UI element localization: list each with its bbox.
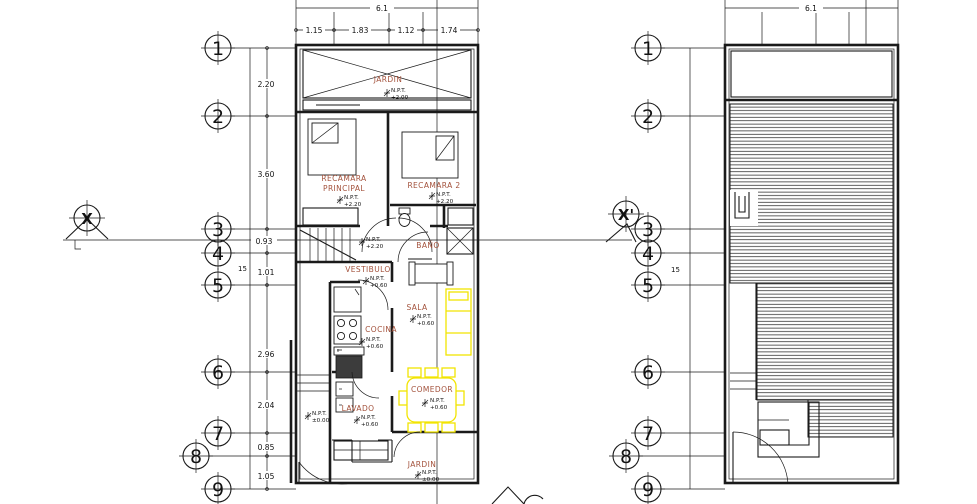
level-marker-icon bbox=[410, 315, 416, 323]
level-marker-icon bbox=[384, 89, 390, 97]
grid-bubble-2: 2 bbox=[201, 99, 296, 133]
door-arc bbox=[394, 432, 420, 457]
dim-seg: 1.83 bbox=[352, 26, 369, 35]
svg-text:±0.00: ±0.00 bbox=[422, 477, 440, 483]
svg-text:+0.60: +0.60 bbox=[430, 405, 448, 411]
dim-side: 1.05 bbox=[258, 472, 275, 481]
level-marker-icon bbox=[429, 192, 435, 200]
garden-hatch bbox=[731, 51, 892, 97]
grid-bubble-3: 3 bbox=[201, 212, 296, 246]
cad-canvas: 6.1 1.15 1.83 1.12 1.74 2.20 3.60 0.93 1… bbox=[0, 0, 977, 504]
svg-text:±0.00: ±0.00 bbox=[312, 418, 330, 424]
grid-bubble-8: 8 bbox=[609, 439, 725, 473]
door-arc bbox=[299, 462, 352, 484]
grid-bubble-2: 2 bbox=[631, 99, 725, 133]
dim-side: 2.04 bbox=[258, 401, 275, 410]
fridge-icon bbox=[334, 287, 361, 312]
svg-text:4: 4 bbox=[212, 243, 224, 265]
svg-text:N.P.T.: N.P.T. bbox=[436, 192, 451, 198]
level-marker-icon bbox=[305, 412, 311, 420]
dim-total-width-left: 6.1 bbox=[376, 4, 388, 13]
roof-hatch bbox=[730, 104, 893, 437]
stove-icon bbox=[334, 316, 361, 344]
grid-bubble-7: 7 bbox=[631, 416, 725, 450]
right-side-passage bbox=[730, 283, 756, 400]
svg-text:N.P.T.: N.P.T. bbox=[361, 415, 376, 421]
left-side-dimensions: 2.20 3.60 0.93 1.01 2.96 2.04 0.85 1.05 … bbox=[238, 47, 279, 491]
svg-text:X: X bbox=[81, 210, 93, 228]
svg-text:N.P.T.: N.P.T. bbox=[366, 337, 381, 343]
svg-text:7: 7 bbox=[642, 423, 654, 445]
svg-text:9: 9 bbox=[642, 479, 654, 501]
dim-seg: 1.12 bbox=[398, 26, 415, 35]
svg-text:+2.20: +2.20 bbox=[436, 199, 454, 205]
side-yard-steps bbox=[296, 375, 330, 391]
svg-text:2: 2 bbox=[642, 106, 654, 128]
svg-text:8: 8 bbox=[620, 446, 632, 468]
grid-bubble-1: 1 bbox=[201, 31, 296, 65]
grid-bubble-4: 4 bbox=[201, 236, 296, 270]
svg-text:2: 2 bbox=[212, 106, 224, 128]
bench-icon bbox=[409, 262, 453, 285]
room-label-cocina: COCINA bbox=[365, 325, 397, 334]
svg-text:+0.60: +0.60 bbox=[361, 422, 379, 428]
shower-icon bbox=[447, 228, 473, 254]
grid-bubble-4: 4 bbox=[631, 236, 725, 270]
room-label-jardin-bottom: JARDIN bbox=[407, 460, 436, 469]
passage-steps bbox=[730, 373, 756, 389]
dim-seg: 1.15 bbox=[306, 26, 323, 35]
grid-bubble-9: 9 bbox=[631, 472, 725, 504]
room-label-lavado: LAVADO bbox=[342, 404, 375, 413]
svg-text:X': X' bbox=[618, 206, 634, 224]
room-label-bano: BAÑO bbox=[416, 241, 439, 250]
room-label-recamara-principal: RECAMARA bbox=[321, 174, 367, 183]
svg-text:N.P.T.: N.P.T. bbox=[366, 237, 381, 243]
dim-total-height-left: 15 bbox=[238, 265, 247, 273]
svg-text:9: 9 bbox=[212, 479, 224, 501]
svg-text:N.P.T.: N.P.T. bbox=[344, 195, 359, 201]
svg-text:+2.20: +2.20 bbox=[366, 244, 384, 250]
svg-text:N.P.T.: N.P.T. bbox=[417, 314, 432, 320]
svg-text:+0.60: +0.60 bbox=[366, 344, 384, 350]
grid-bubbles-right: 1 2 3 4 5 6 7 8 9 bbox=[609, 31, 725, 504]
room-label-comedor: COMEDOR bbox=[411, 385, 453, 394]
dim-total-width-right: 6.1 bbox=[805, 4, 817, 13]
grid-bubble-9: 9 bbox=[201, 472, 296, 504]
level-marker-icon bbox=[415, 471, 421, 479]
section-line-tail bbox=[75, 240, 81, 249]
level-marker-icon bbox=[337, 196, 343, 204]
level-marker-icon bbox=[363, 277, 369, 285]
svg-text:4: 4 bbox=[642, 243, 654, 265]
dim-side: 0.85 bbox=[258, 443, 275, 452]
room-label-sala: SALA bbox=[406, 303, 428, 312]
svg-text:6: 6 bbox=[212, 362, 224, 384]
section-marker-x-prime: X' bbox=[606, 196, 644, 242]
svg-text:1: 1 bbox=[212, 38, 224, 60]
toilet-icon bbox=[399, 208, 410, 227]
dim-side: 2.20 bbox=[258, 80, 275, 89]
grid-bubble-6: 6 bbox=[201, 355, 296, 389]
closet-hatch bbox=[303, 208, 358, 225]
svg-text:N.P.T.: N.P.T. bbox=[312, 411, 327, 417]
svg-text:+2.00: +2.00 bbox=[391, 95, 409, 101]
svg-text:+2.20: +2.20 bbox=[344, 202, 362, 208]
right-top-dimensions: 6.1 bbox=[725, 0, 898, 45]
sofa-icon bbox=[446, 289, 471, 355]
dim-side: 2.96 bbox=[258, 350, 275, 359]
entry-steps bbox=[334, 441, 388, 460]
dim-total-height-right: 15 bbox=[671, 266, 680, 274]
dim-side: 3.60 bbox=[258, 170, 275, 179]
dim-side: 1.01 bbox=[258, 268, 275, 277]
dim-side: 0.93 bbox=[256, 237, 273, 246]
svg-text:5: 5 bbox=[642, 275, 654, 297]
section-marker-x: X bbox=[66, 200, 108, 239]
level-marker-icon bbox=[354, 416, 360, 424]
dim-seg: 1.74 bbox=[441, 26, 458, 35]
svg-text:+0.60: +0.60 bbox=[417, 321, 435, 327]
right-side-dimension: 15 bbox=[671, 48, 690, 489]
svg-text:7: 7 bbox=[212, 423, 224, 445]
grid-bubble-5: 5 bbox=[201, 268, 296, 302]
svg-text:1: 1 bbox=[642, 38, 654, 60]
roof-chimney-notch bbox=[730, 190, 758, 226]
svg-text:N.P.T.: N.P.T. bbox=[422, 470, 437, 476]
floor-plan-drawing: 6.1 1.15 1.83 1.12 1.74 2.20 3.60 0.93 1… bbox=[0, 0, 977, 504]
grid-bubble-7: 7 bbox=[201, 416, 296, 450]
sink-counter-icon bbox=[334, 347, 364, 378]
svg-text:+0.60: +0.60 bbox=[370, 283, 388, 289]
grid-bubble-3: 3 bbox=[631, 212, 725, 246]
svg-text:N.P.T.: N.P.T. bbox=[391, 88, 406, 94]
room-label-vestibulo: VESTIBULO bbox=[345, 265, 390, 274]
room-label-recamara-2: RECAMARA 2 bbox=[407, 181, 460, 190]
svg-text:5: 5 bbox=[212, 275, 224, 297]
svg-text:8: 8 bbox=[190, 446, 202, 468]
closet-hatch bbox=[448, 208, 473, 225]
svg-text:PRINCIPAL: PRINCIPAL bbox=[323, 184, 365, 193]
stairs-icon bbox=[300, 228, 356, 262]
svg-text:N.P.T.: N.P.T. bbox=[430, 398, 445, 404]
bed-icon bbox=[402, 132, 458, 178]
bed-icon bbox=[308, 119, 356, 175]
room-label-jardin-top: JARDIN bbox=[373, 75, 402, 84]
svg-text:N.P.T.: N.P.T. bbox=[370, 276, 385, 282]
partial-section-marker bbox=[492, 487, 543, 504]
grid-bubble-6: 6 bbox=[631, 355, 725, 389]
grid-bubble-1: 1 bbox=[631, 31, 725, 65]
svg-text:6: 6 bbox=[642, 362, 654, 384]
